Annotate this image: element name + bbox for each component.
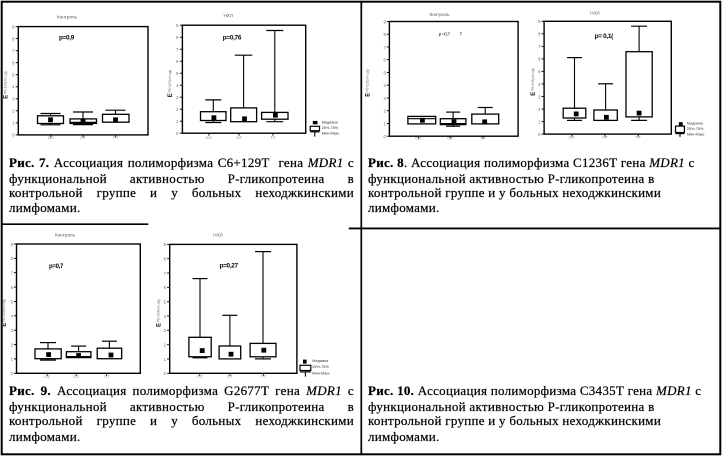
svg-text:9: 9	[12, 24, 15, 29]
svg-text:7: 7	[383, 45, 386, 50]
svg-text:2: 2	[12, 109, 15, 114]
svg-text:8: 8	[383, 32, 386, 37]
svg-text:2: 2	[176, 107, 179, 112]
svg-text:1: 1	[12, 121, 15, 126]
svg-text:0: 0	[11, 371, 14, 376]
svg-text:1: 1	[538, 119, 541, 124]
svg-text:Контроль: Контроль	[430, 12, 451, 17]
svg-text:p=0,27: p=0,27	[220, 263, 239, 270]
svg-text:25%-75%: 25%-75%	[687, 127, 704, 131]
svg-text:3: 3	[11, 328, 14, 333]
svg-text:p=0,76: p=0,76	[223, 34, 242, 41]
svg-text:Медиана: Медиана	[687, 122, 704, 126]
svg-text:Мин-Макс: Мин-Макс	[687, 133, 705, 137]
svg-text:8: 8	[164, 257, 167, 262]
svg-text:9: 9	[538, 19, 541, 24]
svg-text:2: 2	[383, 109, 386, 114]
svg-text:6: 6	[176, 59, 179, 64]
svg-text:p=0,9: p=0,9	[59, 34, 75, 41]
svg-text:4: 4	[12, 85, 15, 90]
svg-text:Мин-Макс: Мин-Макс	[322, 132, 340, 136]
svg-text:1: 1	[176, 119, 179, 124]
svg-text:С/Т: С/Т	[80, 136, 87, 140]
svg-text:7: 7	[11, 271, 14, 276]
svg-text:5: 5	[176, 71, 179, 76]
svg-text:4: 4	[11, 314, 14, 319]
svg-text:7: 7	[164, 271, 167, 276]
svg-text:С/Т: С/Т	[447, 137, 454, 141]
svg-text:Т/Т: Т/Т	[261, 375, 267, 379]
svg-text:7: 7	[12, 49, 15, 54]
svg-text:0: 0	[383, 134, 386, 139]
svg-text:6: 6	[538, 57, 541, 62]
svg-text:1: 1	[11, 357, 14, 362]
svg-text:5: 5	[11, 299, 14, 304]
svg-text:2: 2	[538, 107, 541, 112]
svg-text:3: 3	[176, 95, 179, 100]
svg-text:7: 7	[176, 47, 179, 52]
svg-text:5: 5	[538, 69, 541, 74]
svg-text:Т/Т: Т/Т	[480, 137, 486, 141]
svg-text:25%-75%: 25%-75%	[322, 126, 339, 130]
svg-text:НХЛ: НХЛ	[223, 13, 232, 18]
svg-text:5: 5	[164, 300, 167, 305]
svg-text:1: 1	[383, 121, 386, 126]
svg-text:ЕРб+123(отн.ед): ЕРб+123(отн.ед)	[157, 299, 163, 326]
svg-text:С/С: С/С	[44, 375, 51, 379]
svg-text:6: 6	[383, 58, 386, 63]
svg-text:p= 0,1(: p= 0,1(	[595, 33, 614, 40]
svg-text:С/С: С/С	[206, 136, 213, 140]
svg-text:5: 5	[12, 73, 15, 78]
svg-text:9: 9	[11, 242, 14, 247]
svg-text:С/С: С/С	[415, 137, 422, 141]
svg-text:4: 4	[164, 314, 167, 319]
svg-text:8: 8	[12, 36, 15, 41]
svg-text:9: 9	[383, 19, 386, 24]
svg-text:НХЛ: НХЛ	[590, 11, 599, 16]
svg-text:2: 2	[164, 343, 167, 348]
svg-text:5: 5	[383, 70, 386, 75]
svg-text:Контроль: Контроль	[57, 15, 78, 20]
svg-text:Контроль: Контроль	[55, 233, 76, 238]
svg-text:Т/Т: Т/Т	[636, 136, 642, 140]
svg-text:4: 4	[383, 83, 386, 88]
svg-text:С/Т: С/Т	[602, 136, 609, 140]
svg-text:p =0,7 7: p =0,7 7	[439, 31, 463, 36]
svg-text:Медиана: Медиана	[322, 121, 339, 125]
svg-text:8: 8	[176, 35, 179, 40]
svg-text:p=0,7: p=0,7	[49, 264, 64, 270]
svg-text:3: 3	[538, 94, 541, 99]
svg-text:С/Т: С/Т	[227, 375, 234, 379]
svg-text:4: 4	[176, 83, 179, 88]
svg-text:0: 0	[538, 132, 541, 137]
svg-text:3: 3	[12, 97, 15, 102]
svg-text:НХЛ: НХЛ	[213, 233, 222, 238]
svg-text:С/Т: С/Т	[236, 136, 243, 140]
svg-text:8: 8	[11, 256, 14, 261]
svg-text:ЕРб+123(отн.ед): ЕРб+123(отн.ед)	[168, 70, 174, 97]
svg-text:Т/Т: Т/Т	[104, 375, 110, 379]
svg-text:ЕРб+123(отн.ед): ЕРб+123(отн.ед)	[2, 299, 8, 326]
svg-text:0: 0	[176, 131, 179, 136]
svg-text:9: 9	[176, 23, 179, 28]
svg-text:2: 2	[11, 342, 14, 347]
svg-text:8: 8	[538, 32, 541, 37]
svg-text:6: 6	[11, 285, 14, 290]
svg-text:0: 0	[164, 371, 167, 376]
svg-text:ЕРб+123(отн.ед): ЕРб+123(отн.ед)	[4, 71, 10, 98]
svg-text:Мин-Макс: Мин-Макс	[312, 371, 330, 375]
svg-text:С/Т: С/Т	[73, 375, 80, 379]
svg-text:6: 6	[164, 285, 167, 290]
svg-text:ЕРб+123(отн.ед): ЕРб+123(отн.ед)	[366, 69, 372, 96]
svg-text:7: 7	[538, 44, 541, 49]
svg-text:С/С: С/С	[48, 136, 55, 140]
svg-text:Т/Т: Т/Т	[113, 136, 119, 140]
svg-text:0: 0	[12, 133, 15, 138]
svg-text:9: 9	[164, 242, 167, 247]
svg-text:4: 4	[538, 82, 541, 87]
svg-text:Медиана: Медиана	[312, 359, 329, 363]
svg-text:3: 3	[383, 96, 386, 101]
svg-text:6: 6	[12, 61, 15, 66]
svg-text:С/С: С/С	[569, 136, 576, 140]
svg-text:25%-75%: 25%-75%	[312, 365, 329, 369]
svg-text:3: 3	[164, 328, 167, 333]
svg-text:1: 1	[164, 357, 167, 362]
svg-text:Т/Т: Т/Т	[270, 136, 276, 140]
svg-text:ЕРб+123(отн.ед): ЕРб+123(отн.ед)	[531, 68, 537, 95]
svg-text:С/С: С/С	[197, 375, 204, 379]
